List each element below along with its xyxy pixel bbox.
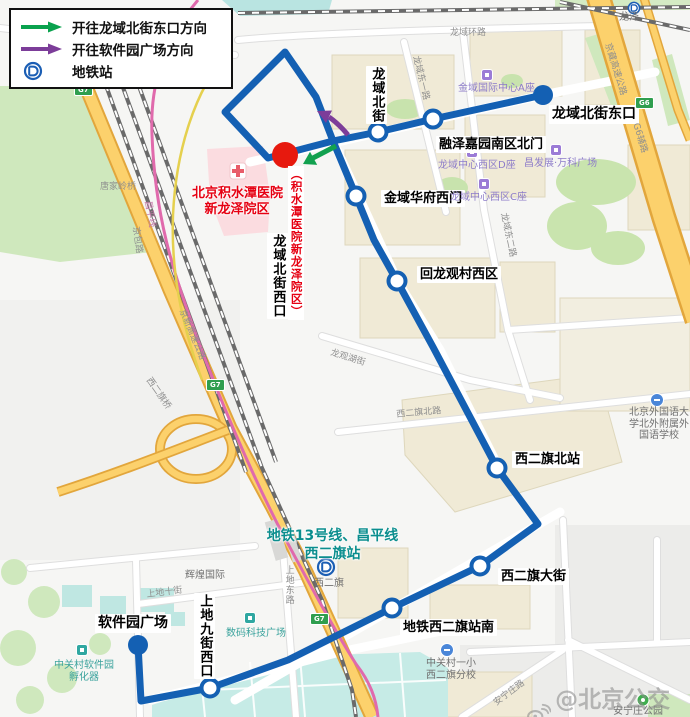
poi-bfsu-school: 北京外国语大学北外附属外国语学校 — [626, 407, 690, 442]
school-icon — [651, 394, 664, 407]
stop-label-huilongguan-village-west: 回龙观村西区 — [417, 266, 501, 283]
school-icon — [441, 644, 454, 657]
stop-label-xierqi-north: 西二旗北站 — [512, 451, 583, 468]
stop-label-xierqi-dajie: 西二旗大街 — [498, 568, 569, 585]
hospital-stop-marker — [272, 142, 298, 168]
legend-label-westbound: 开往软件园广场方向 — [72, 39, 194, 59]
poi-zgc-primary-school: 中关村一小西二旗分校 — [422, 658, 480, 681]
stop-label-software-park-plaza: 软件园广场 — [95, 614, 171, 633]
legend: 开往龙域北街东口方向 开往软件园广场方向 地铁站 — [9, 8, 233, 89]
watermark-text: @北京公交集团 — [555, 680, 690, 717]
stop-label-longyu-beijie-west: 龙域北街西口 — [267, 233, 288, 319]
hospital-cross-icon — [230, 163, 246, 179]
metro-interchange-note: 地铁13号线、昌平线 西二旗站 — [250, 528, 415, 563]
terminal-marker-software-park — [128, 635, 148, 655]
legend-item-metro: 地铁站 — [19, 60, 223, 82]
legend-label-metro: 地铁站 — [72, 61, 113, 81]
poi-longyu-center-d: 龙域中心西区D座 — [438, 160, 516, 172]
purple-arrow-icon — [19, 43, 63, 55]
g7-shield: G7 — [206, 379, 225, 391]
legend-item-westbound: 开往软件园广场方向 — [19, 38, 223, 60]
terminal-marker-longyu-east — [533, 85, 553, 105]
poi-digital-tech-plaza: 数码科技广场 — [226, 628, 286, 640]
stop-label-shangdi-9th-west: 上地九街西口 — [194, 593, 215, 679]
stop-label-metro-xierqi-south: 地铁西二旗站南 — [400, 619, 497, 636]
g7-shield: G7 — [310, 613, 329, 625]
legend-item-eastbound: 开往龙域北街东口方向 — [19, 16, 223, 38]
green-arrow-icon — [19, 21, 63, 33]
road-shangdi-east: 上地东路 — [283, 565, 294, 605]
stop-label-longyu-beijie-east: 龙域北街东口 — [549, 105, 639, 124]
weibo-watermark: @北京公交集团 — [526, 680, 690, 717]
weibo-logo-icon — [526, 699, 551, 717]
stop-label-longyu-beijie: 龙域北街 — [366, 66, 387, 124]
hospital-stop-note: （积水潭医院新龙泽院区） — [288, 166, 304, 320]
metro-station-icon — [19, 60, 63, 82]
stop-label-rongze-jiayuan: 融泽嘉园南区北门 — [436, 136, 546, 153]
poi-changfazhan-vanke: 昌发展·万科广场 — [524, 158, 597, 170]
poi-longze-station: 龙泽 — [619, 12, 639, 24]
bus-route-map: 开往龙域北街东口方向 开往软件园广场方向 地铁站 龙域北街东口 融泽嘉园南区北门… — [0, 0, 690, 717]
poi-zgc-software-incubator: 中关村软件园孵化器 — [52, 660, 116, 683]
road-longyu-ring: 龙域环路 — [450, 28, 486, 39]
poi-xierqi-station: 西二旗 — [314, 578, 344, 590]
poi-huihuang-intl: 辉煌国际 — [185, 570, 225, 582]
legend-label-eastbound: 开往龙域北街东口方向 — [72, 17, 207, 37]
hospital-name: 北京积水潭医院 新龙泽院区 — [192, 186, 282, 217]
poi-longyu-center-c: 龙域中心西区C座 — [450, 192, 527, 204]
poi-jinyu-intl-center: 金域国际中心A座 — [458, 83, 535, 95]
road-tangjialing-bridge: 唐家岭桥 — [100, 182, 136, 193]
g6-shield: G6 — [635, 97, 654, 109]
